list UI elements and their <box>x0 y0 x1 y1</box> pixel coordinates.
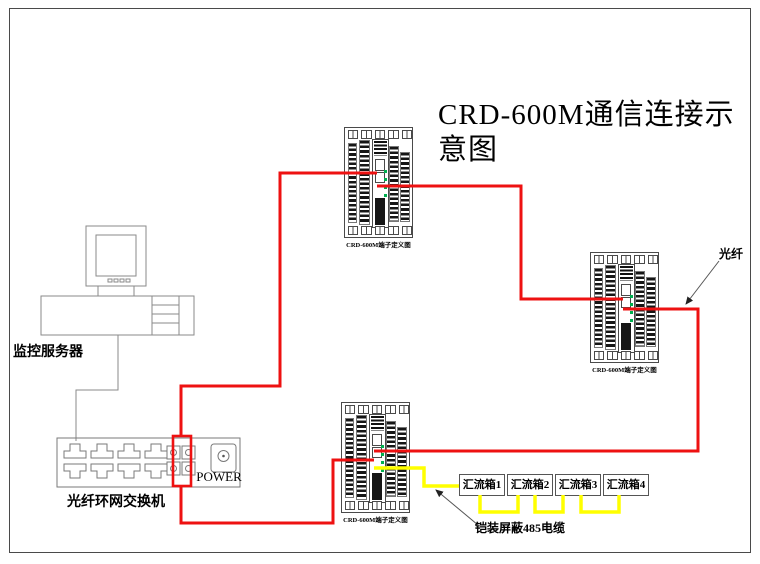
terminal-strip <box>360 141 369 224</box>
terminal-tabs <box>345 226 412 235</box>
device-caption: CRD-600M端子定义图 <box>584 364 665 374</box>
comm-module-column <box>372 139 389 228</box>
terminal-strip <box>357 416 366 499</box>
terminal-strip <box>387 422 395 496</box>
combiner-box-2: 汇流箱2 <box>507 474 553 496</box>
fiber-port-highlight <box>173 436 191 486</box>
led-indicator <box>630 295 633 298</box>
server-label: 监控服务器 <box>13 341 83 361</box>
rj45-port-icons <box>64 444 167 478</box>
power-label: POWER <box>196 469 242 485</box>
led-indicator <box>630 303 633 306</box>
comm-module-column <box>369 414 386 503</box>
fiber-annotation: 光纤 <box>719 245 743 262</box>
device-caption: CRD-600M端子定义图 <box>335 514 416 524</box>
combiner-box-4: 汇流箱4 <box>603 474 649 496</box>
terminal-strip <box>398 428 406 496</box>
terminal-tabs <box>345 130 412 139</box>
rs485-wire-box1-box2 <box>480 495 518 512</box>
crd600m-device-bottom: CRD-600M端子定义图 <box>341 402 410 513</box>
terminal-tabs <box>591 255 658 264</box>
led-indicator <box>381 445 384 448</box>
comm-module-column <box>618 264 635 353</box>
terminal-strip <box>401 153 409 221</box>
terminal-strip <box>346 419 353 497</box>
terminal-tabs <box>342 501 409 510</box>
terminal-board-graphic <box>591 253 658 362</box>
rs485-wire-box3-box4 <box>581 495 619 512</box>
led-indicator <box>384 178 387 181</box>
monitor-icon <box>86 226 146 296</box>
diagram-canvas: CRD-600M通信连接示意图 监控服务器 光纤环网交换机 POWER 光纤 铠… <box>0 0 760 564</box>
fiber-leader-arrow <box>686 261 719 304</box>
diagram-title: CRD-600M通信连接示意图 <box>438 98 760 168</box>
combiner-box-1: 汇流箱1 <box>459 474 505 496</box>
crd600m-device-right: CRD-600M端子定义图 <box>590 252 659 363</box>
terminal-board-graphic <box>342 403 409 512</box>
terminal-tabs <box>591 351 658 360</box>
led-indicator <box>381 469 384 472</box>
crd600m-device-top: CRD-600M端子定义图 <box>344 127 413 238</box>
power-connector-icon <box>211 444 236 472</box>
led-indicator <box>381 461 384 464</box>
switch-label: 光纤环网交换机 <box>67 491 165 511</box>
terminal-strip <box>349 144 356 222</box>
terminal-strip <box>636 272 644 346</box>
led-indicator <box>384 170 387 173</box>
terminal-strip <box>606 266 615 349</box>
terminal-strip <box>647 278 655 346</box>
terminal-tabs <box>342 405 409 414</box>
led-indicator <box>630 319 633 322</box>
rs485-wire-box2-box3 <box>535 495 563 512</box>
led-indicator <box>381 453 384 456</box>
rs485-cable-annotation: 铠装屏蔽485电缆 <box>475 519 565 536</box>
led-indicator <box>384 194 387 197</box>
combiner-box-3: 汇流箱3 <box>555 474 601 496</box>
fiber-port-icon <box>167 446 195 475</box>
terminal-strip <box>390 147 398 221</box>
device-caption: CRD-600M端子定义图 <box>338 239 419 249</box>
led-indicator <box>384 186 387 189</box>
terminal-strip <box>595 269 602 347</box>
led-indicator <box>630 311 633 314</box>
terminal-board-graphic <box>345 128 412 237</box>
computer-case-icon <box>41 296 194 335</box>
